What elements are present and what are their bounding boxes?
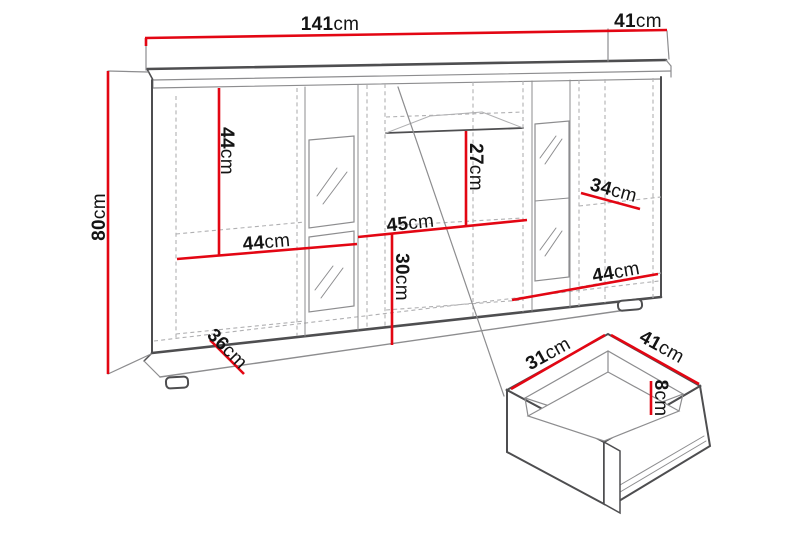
dim-label-center-lower-height: 30cm: [391, 253, 412, 301]
compartment-left-depth-edge: [386, 116, 430, 133]
center-shelf-lower: [386, 300, 523, 310]
cabinet-top-right-corner: [666, 60, 671, 66]
furniture-dimension-diagram: 141cm 41cm 80cm 44cm 44cm 36cm 27cm 45cm…: [0, 0, 800, 533]
cabinet-foot-right: [618, 299, 643, 311]
dim-label-center-upper-height: 27cm: [465, 143, 486, 191]
dim-label-right-section-width: 44cm: [591, 258, 642, 287]
dim-label-left-shelf-width: 44cm: [242, 230, 291, 255]
ext-height-bottom: [108, 354, 151, 374]
dim-label-drawer-inner-height: 8cm: [650, 380, 671, 417]
cabinet-top-underside-edge: [153, 79, 661, 88]
left-glass-pane-lower: [309, 231, 354, 312]
cabinet-top-front-edge: [153, 71, 671, 80]
dim-line-width-and-depth-top: [145, 30, 667, 38]
dim-label-center-width: 45cm: [386, 211, 436, 237]
cabinet-top-left-corner: [147, 69, 153, 80]
drawer-leader-line: [398, 87, 504, 396]
dim-label-width-top: 141cm: [301, 14, 360, 35]
compartment-right-depth-edge: [482, 112, 523, 128]
ext-depth-right: [667, 31, 669, 59]
dim-label-depth-top: 41cm: [614, 11, 662, 32]
cabinet-top-back-edge: [147, 60, 666, 69]
dim-label-left-door-height: 44cm: [216, 127, 237, 175]
dim-line-center-width: [358, 220, 527, 237]
compartment-front-top-edge: [386, 128, 523, 133]
drawer-front-panel-edge: [604, 442, 620, 513]
diagram-stage: 141cm 41cm 80cm 44cm 44cm 36cm 27cm 45cm…: [0, 0, 800, 533]
left-glass-pane-upper: [309, 136, 354, 228]
cabinet-foot-left: [166, 376, 189, 388]
dim-label-height: 80cm: [89, 193, 110, 241]
left-shelf-lower: [176, 321, 305, 334]
plinth-left-edge: [144, 361, 160, 377]
ext-height-top: [108, 71, 148, 72]
